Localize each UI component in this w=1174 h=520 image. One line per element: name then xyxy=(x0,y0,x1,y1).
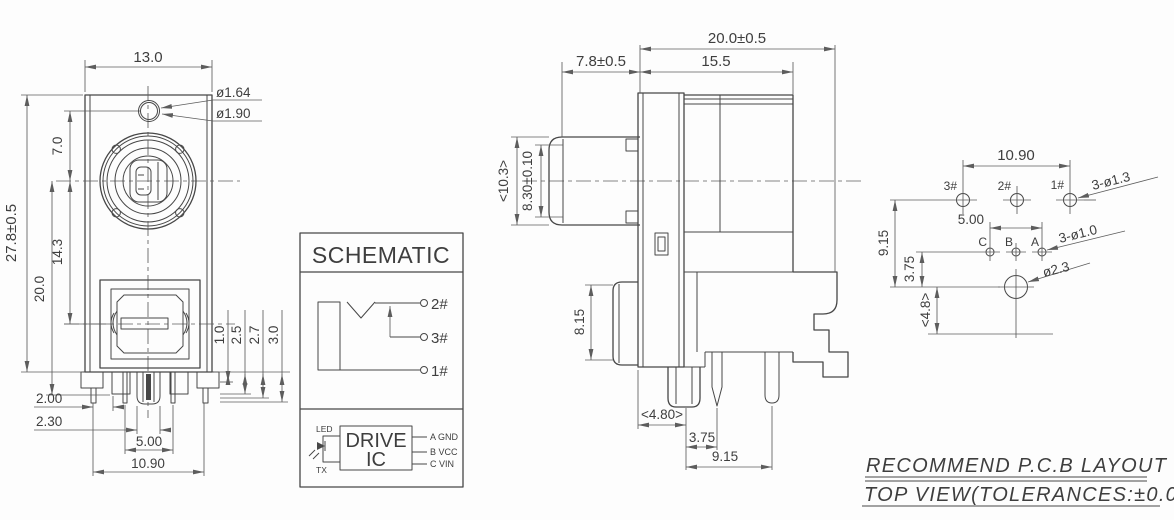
dim-jack-to-pins: 20.0 xyxy=(32,181,110,395)
dim-jack-to-pins-label: 20.0 xyxy=(32,276,47,302)
dim-front-width: 13.0 xyxy=(85,49,212,92)
dim-pin-b-label: 2.5 xyxy=(229,326,244,345)
ic-pin-b-label: B VCC xyxy=(430,447,458,457)
dim-pin-bottom: 2.00 2.30 5.00 10.90 xyxy=(34,391,204,476)
pcb-pad-a-label: A xyxy=(1031,235,1039,249)
dim-hole-inner-label: ø1.64 xyxy=(216,85,251,100)
dim-pin-pitch-label: 5.00 xyxy=(136,434,162,449)
terminal-2-label: 2# xyxy=(431,296,448,313)
pcb-row2-holes: C B A xyxy=(916,235,1052,261)
terminal-3-label: 3# xyxy=(431,330,448,347)
dim-front-width-label: 13.0 xyxy=(133,49,162,66)
ic-pin-c-label: C VIN xyxy=(430,459,454,469)
front-pins xyxy=(81,372,219,404)
pcb-pad-c-label: C xyxy=(978,235,987,249)
pcb-hole-2-label: 2# xyxy=(998,179,1012,193)
led-label: LED xyxy=(316,424,333,434)
dim-jack-to-usb-label: 14.3 xyxy=(50,239,65,265)
dim-pin-c-label: 2.7 xyxy=(247,326,262,345)
callout-center-hole-label: ø2.3 xyxy=(1041,259,1071,280)
dim-usb-height: 8.15 xyxy=(572,285,613,360)
note-line2: TOP VIEW(TOLERANCES:±0.05) xyxy=(864,484,1174,506)
dim-row2-span: 5.00 xyxy=(958,212,1042,243)
side-view: 20.0±0.5 7.8±0.5 15.5 <10.3> 8.30±0.10 xyxy=(496,30,864,470)
pcb-row1-holes: 3# 2# 1# xyxy=(890,178,1096,214)
schematic-panel: SCHEMATIC 2# 3# 1# DRIVE IC LED TX xyxy=(300,233,463,487)
dim-side-pin-span-label: 9.15 xyxy=(712,449,738,464)
jack-symbol: 2# 3# 1# xyxy=(318,296,448,380)
dim-pin-d-label: 3.0 xyxy=(266,326,281,345)
drive-ic-circuit: DRIVE IC LED TX A GND B VCC C VIN xyxy=(309,424,459,475)
note-line1: RECOMMEND P.C.B LAYOUT xyxy=(866,455,1168,477)
dim-front-height-label: 27.8±0.5 xyxy=(3,204,20,262)
ic-pin-a-label: A GND xyxy=(430,432,459,442)
pcb-pad-b-label: B xyxy=(1005,235,1013,249)
pcb-hole-1-label: 1# xyxy=(1051,178,1065,192)
led-mounting-hole xyxy=(139,101,160,122)
pcb-hole-3-label: 3# xyxy=(944,179,958,193)
dim-rows-gap-label: 9.15 xyxy=(876,230,891,256)
terminal-1-label: 1# xyxy=(431,363,448,380)
dim-pin-left-label: 2.00 xyxy=(36,391,62,406)
dim-body-depth: 15.5 xyxy=(640,53,793,95)
dim-hole-to-jack: 7.0 xyxy=(50,111,70,181)
dim-jack-to-usb: 14.3 xyxy=(50,181,112,324)
dim-total-depth-label: 20.0±0.5 xyxy=(708,30,766,47)
front-view-body xyxy=(85,95,212,372)
dim-side-pins: <4.80> 3.75 9.15 xyxy=(638,370,772,470)
side-view-pins xyxy=(668,352,779,407)
dim-row2-gap-label: 3.75 xyxy=(902,256,917,282)
dim-pin-steps: 1.0 2.5 2.7 3.0 xyxy=(212,310,290,402)
side-view-outline xyxy=(549,93,848,377)
dim-edge-gap-label: <4.8> xyxy=(918,293,933,328)
schematic-title: SCHEMATIC xyxy=(312,242,450,268)
connector-drawing: 13.0 ø1.64 ø1.90 27.8±0.5 20.0 14.3 xyxy=(0,0,1174,520)
dim-row1-span-label: 10.90 xyxy=(997,147,1035,164)
callout-row2-holes: 3-ø1.0 xyxy=(1047,222,1125,250)
callout-row1-holes: 3-ø1.3 xyxy=(1078,169,1158,198)
dim-front-depth-label: 7.8±0.5 xyxy=(576,53,626,70)
dim-front-depth: 7.8±0.5 xyxy=(562,53,640,137)
dim-row2-span-label: 5.00 xyxy=(958,212,984,227)
front-view: 13.0 ø1.64 ø1.90 27.8±0.5 20.0 14.3 xyxy=(3,49,290,476)
dim-hole-outer-label: ø1.90 xyxy=(216,106,251,121)
drive-ic-label-2: IC xyxy=(366,449,386,471)
dim-pin-ref-label: <4.80> xyxy=(641,407,683,422)
notes: RECOMMEND P.C.B LAYOUT TOP VIEW(TOLERANC… xyxy=(862,455,1174,506)
dim-post-width-label: 2.30 xyxy=(36,414,62,429)
dim-total-depth: 20.0±0.5 xyxy=(640,30,835,272)
dim-opening-label: 8.30±0.10 xyxy=(520,151,535,211)
dim-bezel-label: <10.3> xyxy=(496,160,511,202)
dim-hole-to-jack-label: 7.0 xyxy=(50,137,65,156)
pcb-layout: 3# 2# 1# 10.90 3-ø1.3 C B A xyxy=(876,147,1158,338)
engineering-drawing-sheet: 13.0 ø1.64 ø1.90 27.8±0.5 20.0 14.3 xyxy=(0,0,1174,520)
dim-pin-a-label: 1.0 xyxy=(212,326,227,345)
dim-pin-span-label: 10.90 xyxy=(131,456,165,471)
dim-usb-height-label: 8.15 xyxy=(572,309,587,335)
dim-body-depth-label: 15.5 xyxy=(701,53,730,70)
pcb-center-hole: ø2.3 xyxy=(998,259,1090,338)
dim-front-height: 27.8±0.5 xyxy=(3,95,83,372)
dim-pin-gap-label: 3.75 xyxy=(689,430,715,445)
tx-label: TX xyxy=(316,465,327,475)
